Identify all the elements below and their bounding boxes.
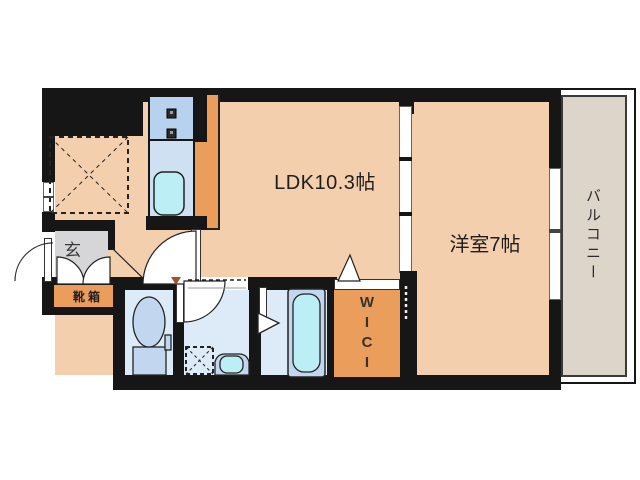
entry-door-leaf <box>44 238 52 282</box>
bath-folding-door-panel <box>259 287 267 319</box>
right-wall-lower <box>549 300 561 377</box>
wic-letter-1: W <box>360 293 374 313</box>
kitchen-bottom-wall <box>146 216 207 230</box>
kitchen-corner-block <box>42 88 143 136</box>
left-wall-mid <box>42 212 55 232</box>
wic-east-wall <box>400 271 417 390</box>
balcony-window <box>549 168 561 300</box>
shoe-box-label: 靴箱 <box>54 285 122 307</box>
kitchen-counter-stub-wall <box>193 95 207 142</box>
hall-door-leaf <box>191 229 201 284</box>
bathroom <box>261 290 327 375</box>
toilet-room <box>125 290 173 375</box>
ldk-room-label: LDK10.3帖 <box>235 166 415 195</box>
wic-door-bar <box>334 279 400 290</box>
right-wall-upper <box>549 88 561 168</box>
washroom <box>184 290 249 375</box>
balcony-label: バルコニー <box>582 188 603 328</box>
entrance-label: 玄 <box>64 236 81 261</box>
washroom-door-leaf <box>176 281 184 323</box>
wic-letter-2: I <box>365 313 369 333</box>
wic-closet: W I C I <box>334 290 400 377</box>
kitchen-sink-unit <box>148 139 195 220</box>
western-room-label: 洋室7帖 <box>420 228 550 257</box>
kitchen-stove-unit <box>148 95 195 141</box>
left-window <box>43 182 54 212</box>
floor-plan-canvas: W I C I <box>0 0 640 480</box>
wic-letter-3: C <box>362 333 373 353</box>
wic-letter-4: I <box>365 353 369 373</box>
